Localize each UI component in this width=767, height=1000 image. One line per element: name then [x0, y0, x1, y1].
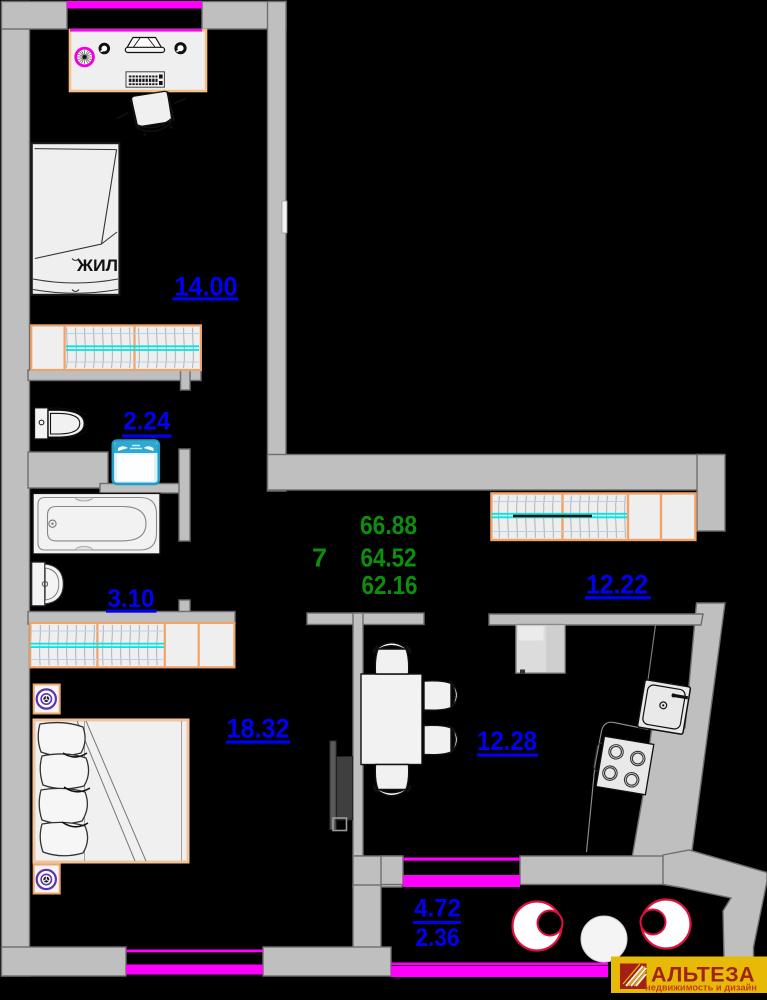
- svg-text:2.24: 2.24: [123, 408, 170, 436]
- svg-text:62.16: 62.16: [362, 570, 418, 600]
- svg-text:12.28: 12.28: [477, 726, 537, 756]
- svg-text:3.10: 3.10: [108, 585, 155, 613]
- svg-text:ЖИЛ: ЖИЛ: [76, 257, 118, 275]
- svg-text:7: 7: [312, 543, 327, 573]
- svg-text:64.52: 64.52: [361, 543, 417, 573]
- svg-text:12.22: 12.22: [586, 570, 648, 600]
- svg-text:4.72: 4.72: [414, 895, 461, 923]
- svg-text:14.00: 14.00: [175, 272, 238, 302]
- svg-text:18.32: 18.32: [227, 714, 290, 744]
- svg-text:66.88: 66.88: [360, 510, 417, 540]
- svg-text:недвижимость и дизайн: недвижимость и дизайн: [645, 983, 757, 993]
- svg-text:2.36: 2.36: [416, 924, 460, 952]
